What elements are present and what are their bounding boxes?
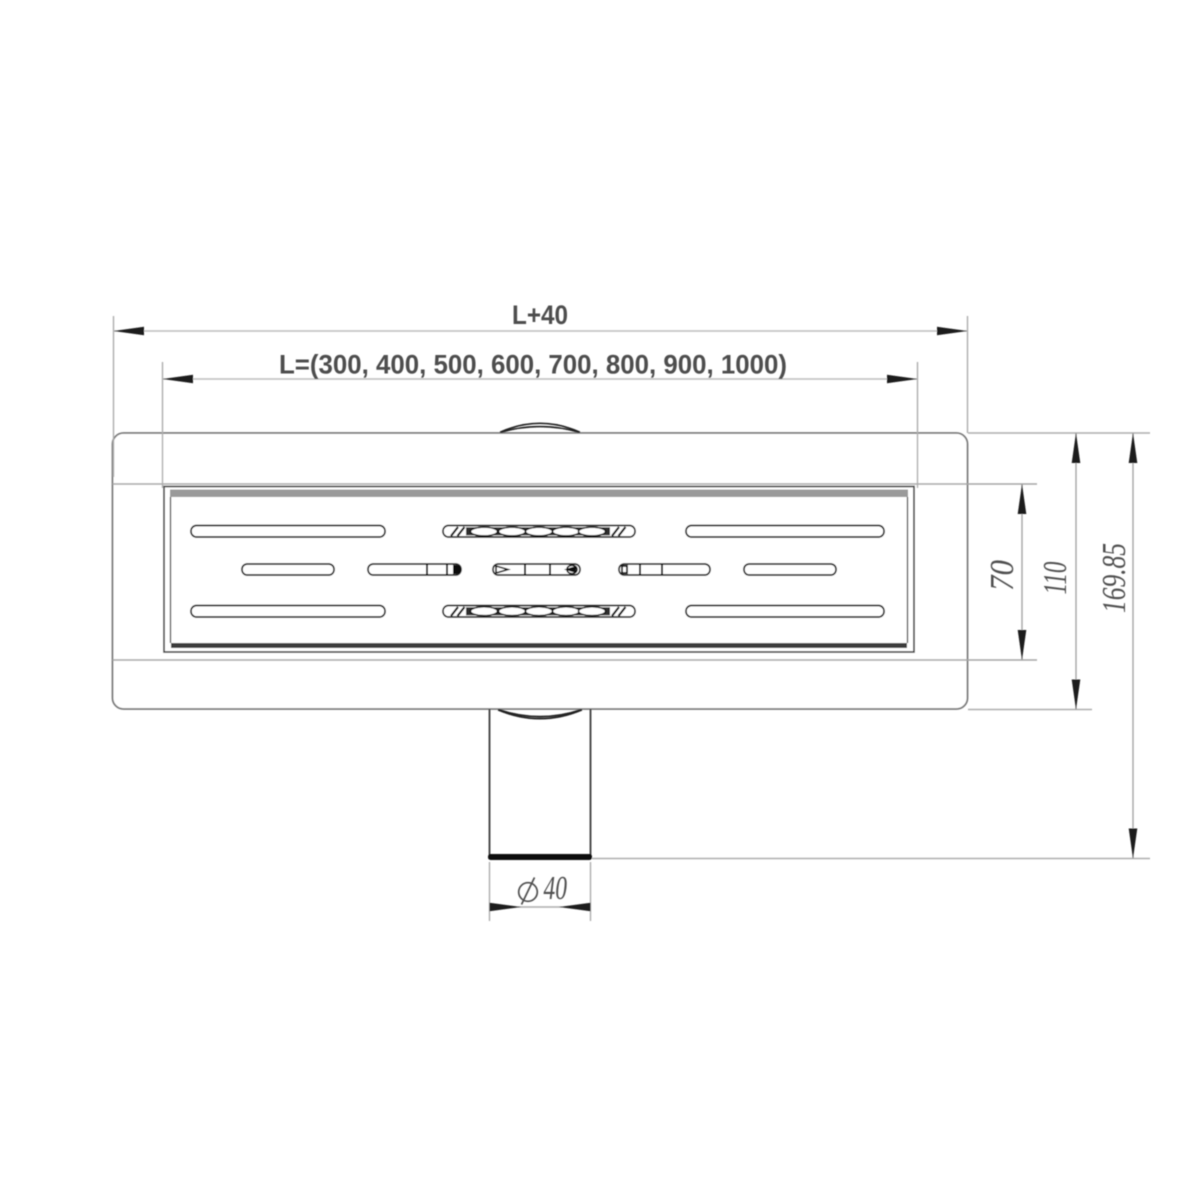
svg-text:L+40: L+40 (512, 300, 568, 330)
svg-text:40: 40 (544, 870, 568, 907)
svg-text:L=(300, 400, 500, 600, 700, 80: L=(300, 400, 500, 600, 700, 800, 900, 10… (279, 350, 787, 380)
svg-text:110: 110 (1037, 562, 1074, 595)
svg-text:70: 70 (984, 560, 1021, 591)
svg-text:169.85: 169.85 (1096, 543, 1133, 613)
